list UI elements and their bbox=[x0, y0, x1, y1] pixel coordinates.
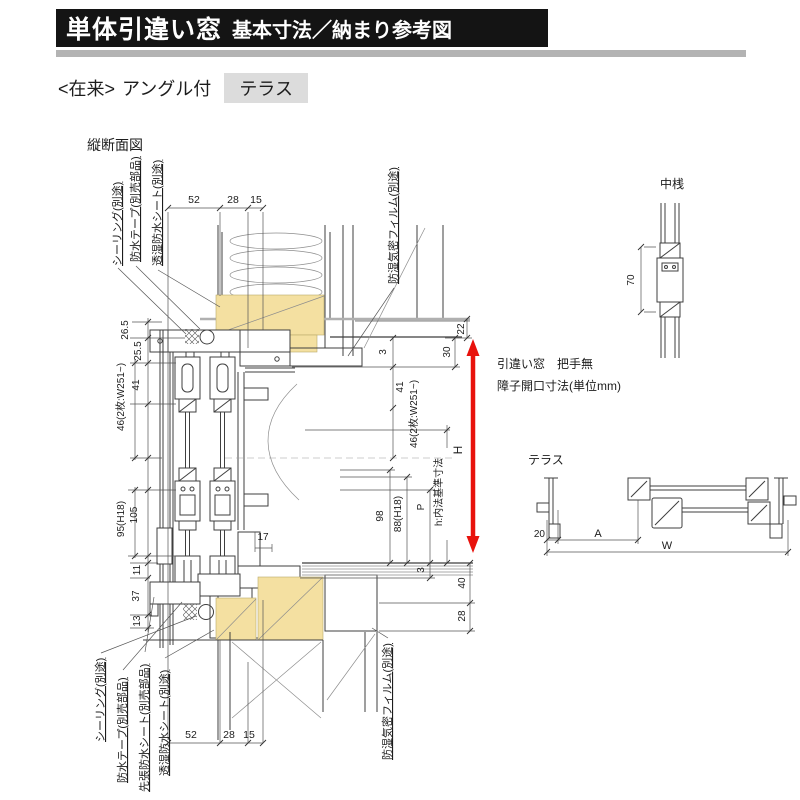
arrowhead-up bbox=[467, 339, 480, 356]
dim-right-3-top: 3 bbox=[378, 349, 389, 355]
dim-right-88: 88(H18) bbox=[393, 496, 404, 532]
dim-terrace-W: W bbox=[662, 540, 673, 552]
sealing-tape-bottom bbox=[183, 604, 197, 620]
dim-bottom-15: 15 bbox=[243, 729, 255, 741]
note-line2: 障子開口寸法(単位mm) bbox=[497, 378, 621, 393]
dim-top-28: 28 bbox=[227, 194, 239, 206]
outer-sash-plan bbox=[628, 478, 768, 500]
horizontal-section-title: テラス bbox=[528, 453, 564, 467]
dim-right-30: 30 bbox=[442, 346, 453, 358]
dim-right-46: 46(2枚:W251~) bbox=[407, 380, 420, 448]
dim-terrace-A: A bbox=[594, 528, 602, 540]
sill-and-floor bbox=[150, 563, 473, 640]
dim-left-25-5: 25.5 bbox=[133, 341, 144, 361]
vertical-section: 52 28 15 52 28 15 26.5 25.5 41 bbox=[93, 156, 480, 792]
dim-left-37: 37 bbox=[131, 590, 142, 602]
callout-waterproof-tape-top: 防水テープ(別売部品) bbox=[128, 156, 142, 262]
dim-left-41: 41 bbox=[131, 379, 142, 391]
interior-sash bbox=[210, 357, 235, 586]
dim-top-15: 15 bbox=[250, 194, 262, 206]
callout-vapor-barrier-bottom: 防湿気密フィルム(別途) bbox=[380, 643, 394, 760]
floor-crosshatch bbox=[325, 575, 377, 631]
dim-17: 17 bbox=[257, 532, 269, 543]
dim-left-13: 13 bbox=[132, 615, 143, 627]
dim-left-105: 105 bbox=[129, 506, 140, 523]
callout-sealing-top: シーリング(別途) bbox=[110, 182, 124, 266]
inner-sash-plan bbox=[652, 498, 770, 528]
page: 単体引違い窓 基本寸法／納まり参考図 <在来> アングル付 テラス 縦断面図 bbox=[0, 0, 800, 800]
callout-breathable-sheet-top: 透湿防水シート(別途) bbox=[150, 160, 164, 266]
technical-drawing: 縦断面図 bbox=[0, 0, 800, 800]
dim-bottom-52: 52 bbox=[185, 729, 197, 741]
dim-right-p: P bbox=[416, 503, 427, 510]
exterior-sash bbox=[175, 357, 200, 586]
dim-right-28: 28 bbox=[457, 610, 468, 622]
height-arrow bbox=[467, 339, 480, 553]
center-rail-dim-70: 70 bbox=[626, 274, 637, 286]
note-line1: 引違い窓 把手無 bbox=[497, 356, 593, 371]
wall-below bbox=[143, 632, 377, 740]
center-rail-detail: 中桟 70 bbox=[626, 176, 684, 358]
callout-breathable-sheet-bottom: 透湿防水シート(別途) bbox=[157, 670, 171, 776]
callout-waterproof-tape-bottom: 防水テープ(別売部品) bbox=[115, 677, 129, 783]
dim-bottom-28: 28 bbox=[223, 729, 235, 741]
sealing-tape-top bbox=[185, 329, 199, 344]
dim-left-26-5: 26.5 bbox=[120, 320, 131, 340]
callout-sealing-bottom: シーリング(別途) bbox=[93, 658, 107, 742]
callout-vapor-barrier-top: 防湿気密フィルム(別途) bbox=[386, 167, 400, 284]
dim-right-3-bottom: 3 bbox=[416, 567, 427, 573]
arrowhead-down bbox=[467, 536, 480, 553]
note: 引違い窓 把手無 障子開口寸法(単位mm) bbox=[497, 356, 621, 393]
center-rail-title: 中桟 bbox=[660, 176, 684, 191]
dim-right-41: 41 bbox=[395, 381, 406, 393]
insulation-coil bbox=[230, 233, 322, 300]
horizontal-section: テラス 20 A bbox=[528, 453, 796, 556]
dim-left-46: 46(2枚:W251~) bbox=[114, 363, 127, 431]
dim-right-H: H bbox=[451, 446, 465, 455]
vertical-section-caption: 縦断面図 bbox=[87, 137, 143, 153]
dim-right-98: 98 bbox=[375, 510, 386, 522]
dim-left-95: 95(H18) bbox=[116, 501, 127, 537]
dim-terrace-20: 20 bbox=[534, 529, 546, 540]
dim-right-40: 40 bbox=[457, 577, 468, 589]
right-jamb bbox=[770, 478, 796, 538]
dim-top-52: 52 bbox=[188, 194, 200, 206]
dim-right-22: 22 bbox=[456, 323, 467, 335]
callout-pre-applied-sheet-bottom: 先張防水シート(別売部品) bbox=[137, 664, 151, 792]
dim-right-h-standard: h:内法基準寸法 bbox=[432, 458, 445, 526]
dim-left-11: 11 bbox=[132, 564, 143, 575]
